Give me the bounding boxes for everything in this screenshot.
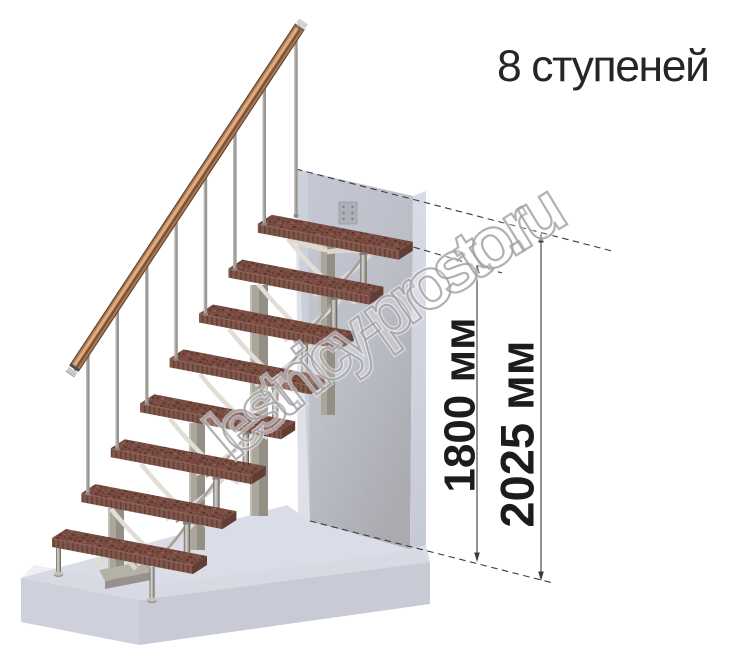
svg-text:1800 мм: 1800 мм <box>436 317 485 492</box>
svg-text:8 ступеней: 8 ступеней <box>497 42 709 91</box>
svg-text:2025 мм: 2025 мм <box>491 340 544 527</box>
